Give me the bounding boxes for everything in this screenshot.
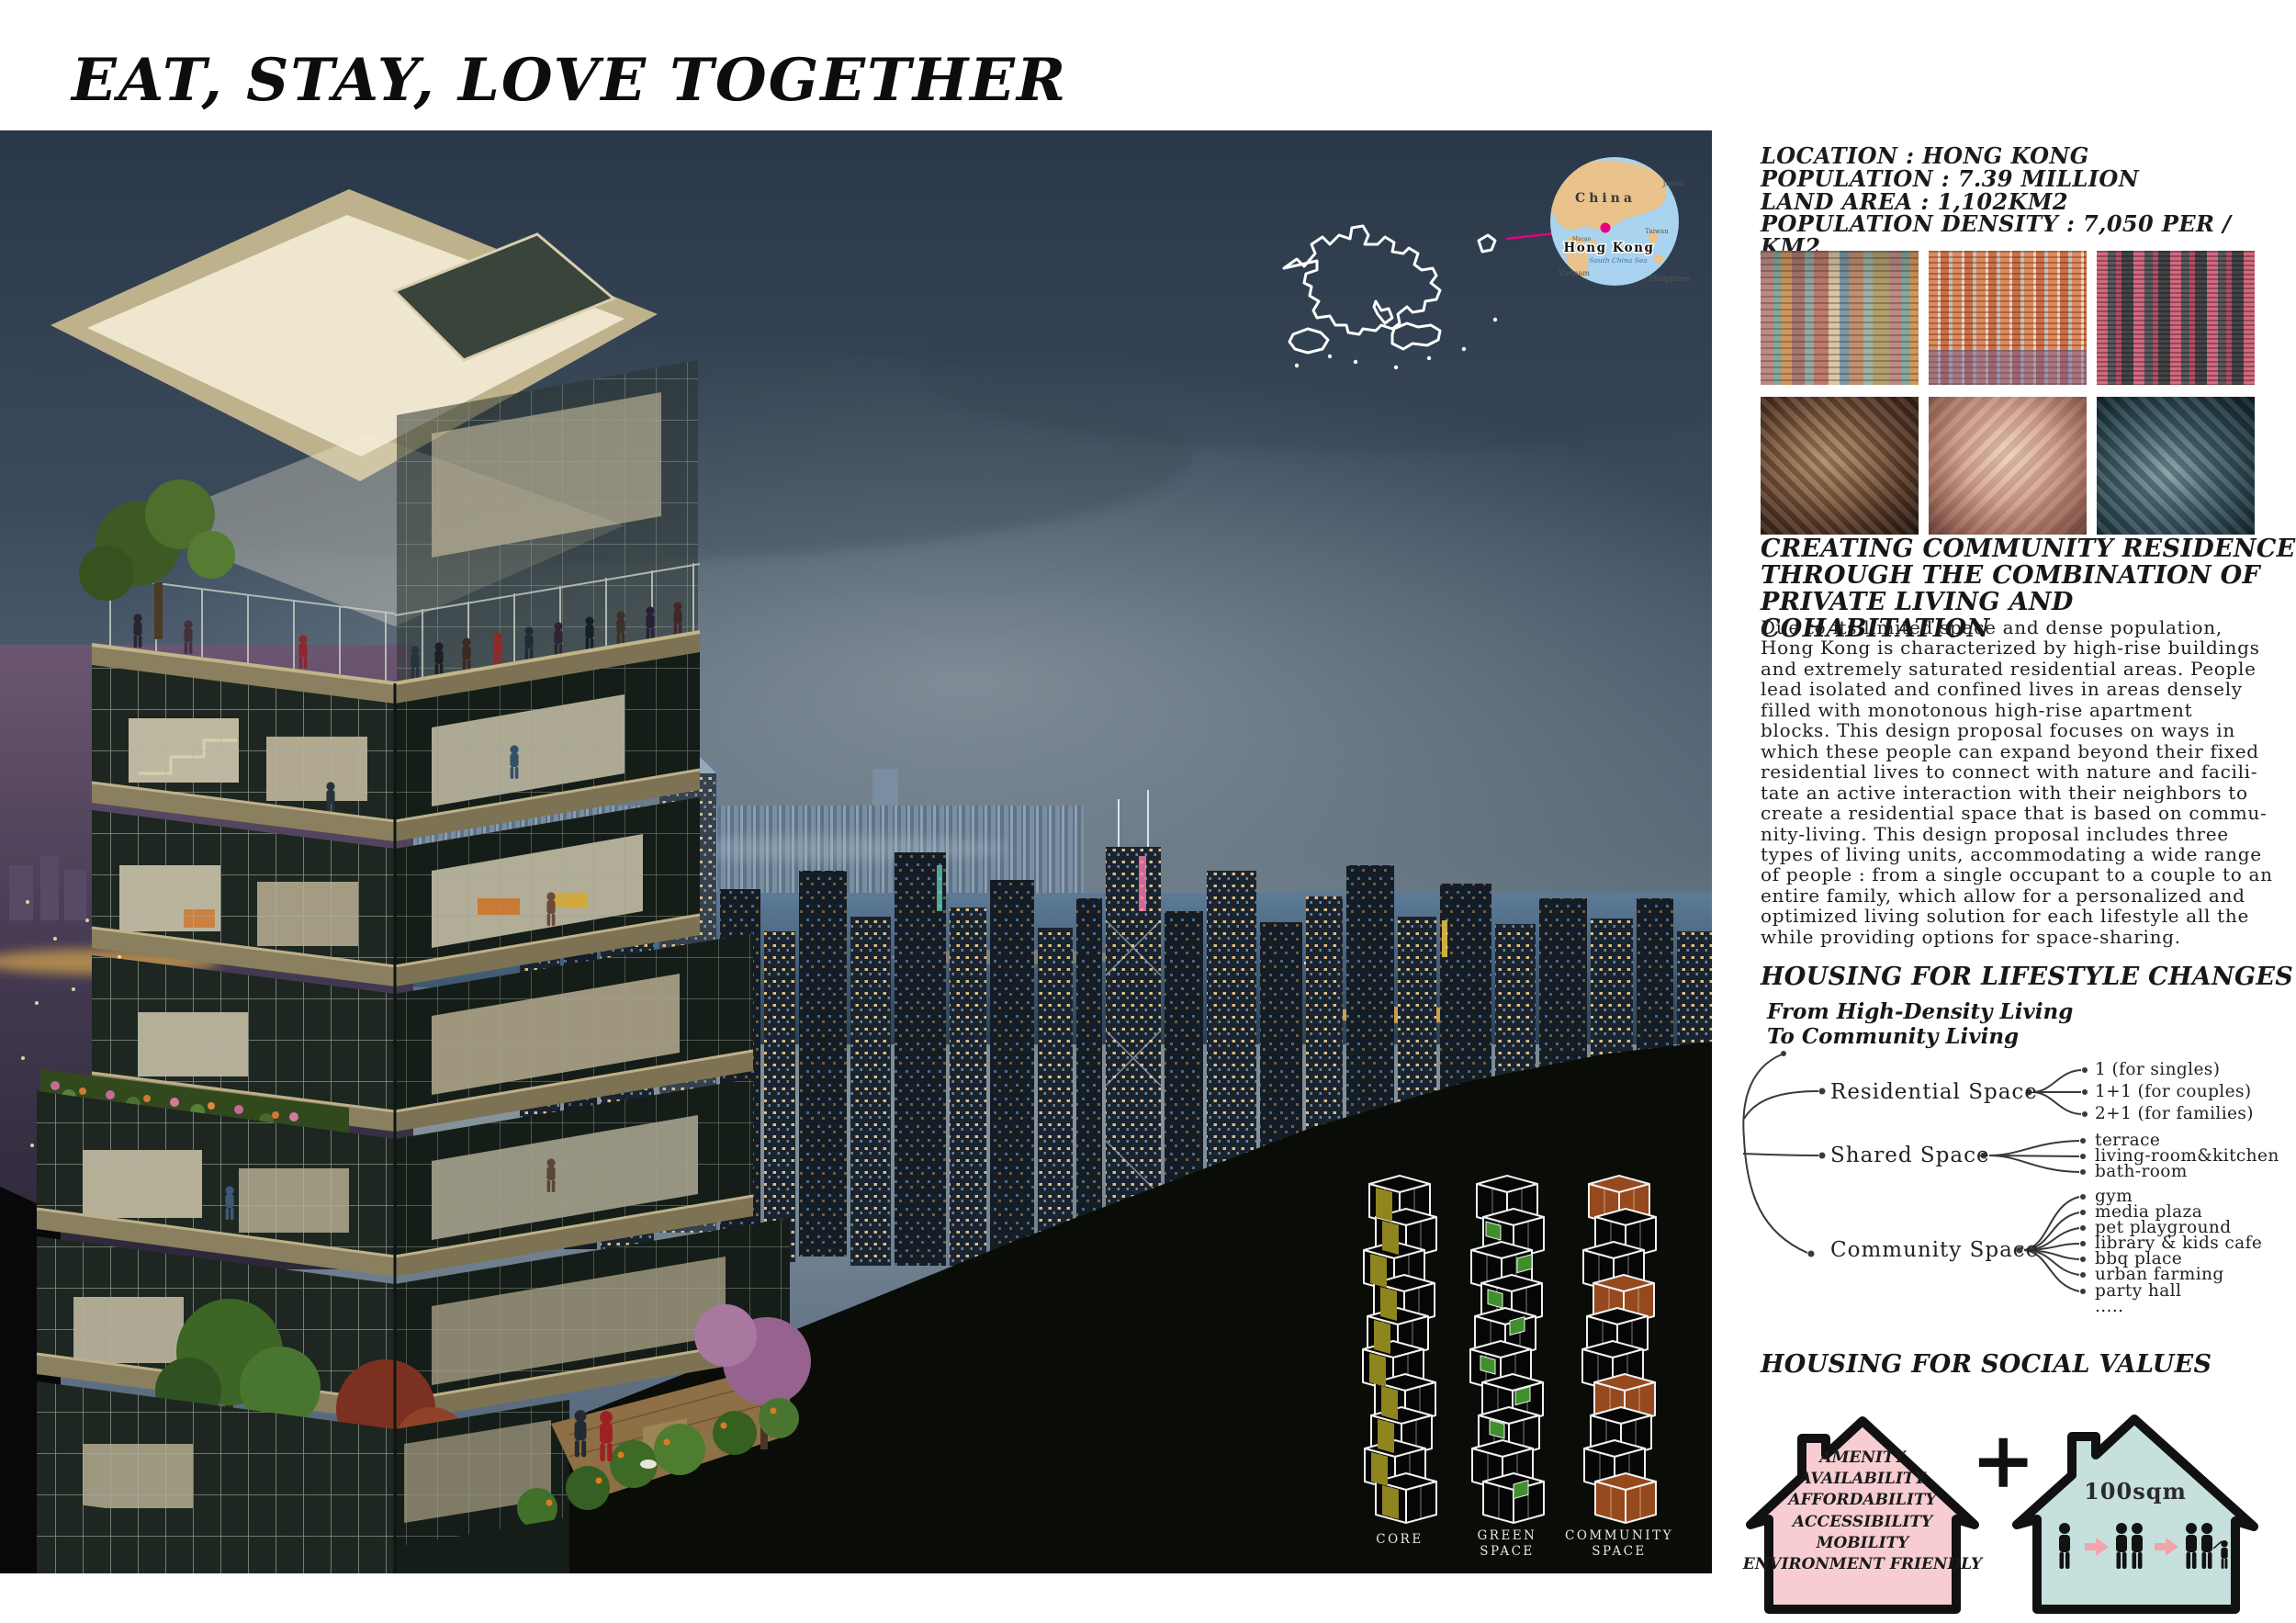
globe-label-china: China — [1575, 191, 1636, 206]
area-label: 100sqm — [2084, 1478, 2187, 1505]
tower-label-community-1: COMMUNITY — [1565, 1528, 1673, 1543]
shared-house-shape — [2017, 1419, 2254, 1609]
leaf-couples: 1+1 (for couples) — [2095, 1084, 2251, 1101]
photo-flat-overhead-brown — [1761, 397, 1919, 535]
value-amenity: AMENITY — [1741, 1448, 1984, 1469]
night-render-svg: China Japan Taiwan Vietnam Philippines S… — [0, 130, 1712, 1573]
social-heading: HOUSING FOR SOCIAL VALUES — [1761, 1351, 2212, 1378]
bank-of-china-tower — [1106, 790, 1161, 1251]
globe-label-sea: South China Sea — [1589, 256, 1647, 265]
photo-flat-overhead-dark — [2097, 397, 2255, 535]
leaf-ellipsis: ..... — [2095, 1299, 2123, 1316]
lifestyle-heading: HOUSING FOR LIFESTYLE CHANGES — [1761, 964, 2293, 990]
location-stats: LOCATION : HONG KONG POPULATION : 7.39 M… — [1761, 145, 2296, 259]
photo-highrise-pink — [2097, 251, 2255, 385]
tower-label-community-2: SPACE — [1592, 1544, 1647, 1559]
leaf-families: 2+1 (for families) — [2095, 1106, 2254, 1123]
branch-shared: Shared Space — [1830, 1144, 1990, 1167]
value-availability: AVAILABILITY — [1741, 1469, 1984, 1490]
globe-label-philippines: Philippines — [1649, 275, 1690, 283]
globe-label-hongkong: Hong Kong — [1564, 241, 1655, 255]
branch-residential: Residential Space — [1830, 1080, 2038, 1104]
lifestyle-tree-lines — [1740, 992, 2296, 1341]
hong-kong-dot — [1601, 223, 1611, 233]
photo-highrise-colorful — [1761, 251, 1919, 385]
leaf-singles: 1 (for singles) — [2095, 1062, 2220, 1079]
photo-highrise-orange — [1929, 251, 2087, 385]
tower-diagrams: CORE GREEN SPACE COMMUNITY SPACE — [1363, 1176, 1673, 1559]
photo-flat-overhead-people — [1929, 397, 2087, 535]
tower-label-green-2: SPACE — [1480, 1544, 1535, 1559]
value-mobility: MOBILITY — [1741, 1533, 1984, 1554]
globe-label-vietnam: Vietnam — [1558, 269, 1590, 277]
page-title: EAT, STAY, LOVE TOGETHER — [72, 46, 1067, 115]
main-render: China Japan Taiwan Vietnam Philippines S… — [0, 130, 1712, 1573]
value-accessibility: ACCESSIBILITY — [1741, 1512, 1984, 1533]
reference-photos — [1761, 251, 2255, 535]
branch-community: Community Space — [1830, 1238, 2039, 1262]
tower-label-core: CORE — [1376, 1532, 1423, 1547]
value-environment: ENVIRONMENT FRIENDLY — [1741, 1554, 1984, 1575]
globe-label-taiwan: Taiwan — [1645, 228, 1669, 235]
globe-label-japan: Japan — [1661, 179, 1683, 187]
value-affordability: AFFORDABILITY — [1741, 1490, 1984, 1511]
presentation-board: EAT, STAY, LOVE TOGETHER — [0, 0, 2296, 1623]
shared-house: 100sqm — [2008, 1381, 2263, 1618]
leaf-bathroom: bath-room — [2095, 1164, 2188, 1181]
intro-body: Due to its limited space and dense popul… — [1761, 617, 2296, 947]
values-list: AMENITY AVAILABILITY AFFORDABILITY ACCES… — [1741, 1381, 1984, 1575]
tower-label-green-1: GREEN — [1478, 1528, 1537, 1543]
